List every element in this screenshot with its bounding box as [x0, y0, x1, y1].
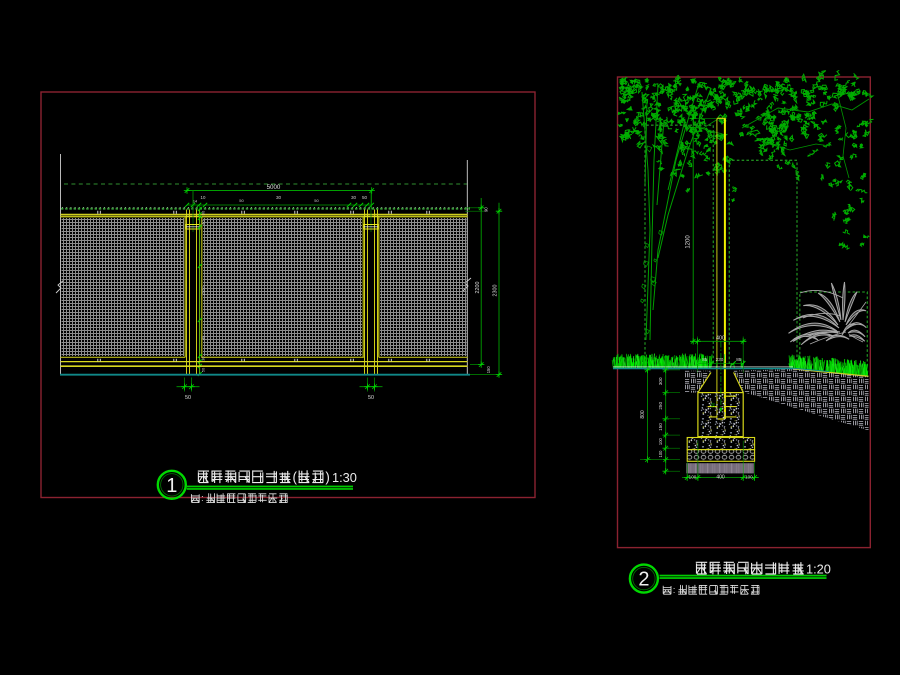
svg-text:40: 40: [201, 335, 206, 340]
svg-text:50: 50: [362, 195, 368, 200]
svg-text:2300: 2300: [493, 285, 499, 297]
svg-text:250: 250: [658, 402, 663, 410]
svg-text:300: 300: [658, 377, 663, 385]
svg-text:14: 14: [193, 200, 197, 204]
svg-text:10: 10: [201, 195, 206, 200]
svg-text:1:30: 1:30: [332, 470, 357, 485]
svg-text:100: 100: [658, 450, 663, 458]
svg-text:50: 50: [368, 395, 374, 401]
svg-text:): ): [325, 470, 329, 485]
svg-text:1:20: 1:20: [806, 561, 831, 576]
svg-text:800: 800: [640, 410, 646, 419]
svg-text:400: 400: [716, 335, 725, 341]
svg-text:5000: 5000: [267, 184, 281, 191]
svg-text:30: 30: [351, 195, 357, 200]
svg-text:(: (: [293, 470, 298, 485]
svg-text:30: 30: [276, 195, 282, 200]
svg-text:50: 50: [711, 402, 716, 407]
svg-text:100: 100: [745, 475, 753, 480]
svg-text:150: 150: [486, 366, 491, 374]
svg-text:2200: 2200: [475, 282, 481, 294]
svg-text:2: 2: [638, 569, 649, 591]
svg-text:400: 400: [716, 475, 725, 481]
svg-text:50: 50: [201, 367, 206, 372]
svg-text:100: 100: [658, 437, 663, 445]
svg-text:85: 85: [736, 357, 742, 362]
svg-text:2020: 2020: [201, 286, 206, 296]
svg-text:85: 85: [702, 357, 708, 362]
svg-text::: :: [673, 585, 675, 595]
svg-text:90: 90: [484, 207, 489, 212]
svg-text:1: 1: [166, 475, 177, 497]
svg-text:40: 40: [201, 220, 206, 225]
svg-text:50: 50: [314, 198, 319, 203]
svg-text:100: 100: [689, 475, 697, 480]
svg-text:50: 50: [185, 395, 191, 401]
svg-text:1200: 1200: [686, 235, 692, 249]
svg-text:50: 50: [239, 198, 244, 203]
svg-text::: :: [201, 493, 203, 503]
svg-text:230: 230: [716, 357, 724, 362]
svg-text:30: 30: [201, 356, 206, 361]
svg-text:30: 30: [201, 210, 206, 215]
svg-text:150: 150: [658, 423, 663, 431]
